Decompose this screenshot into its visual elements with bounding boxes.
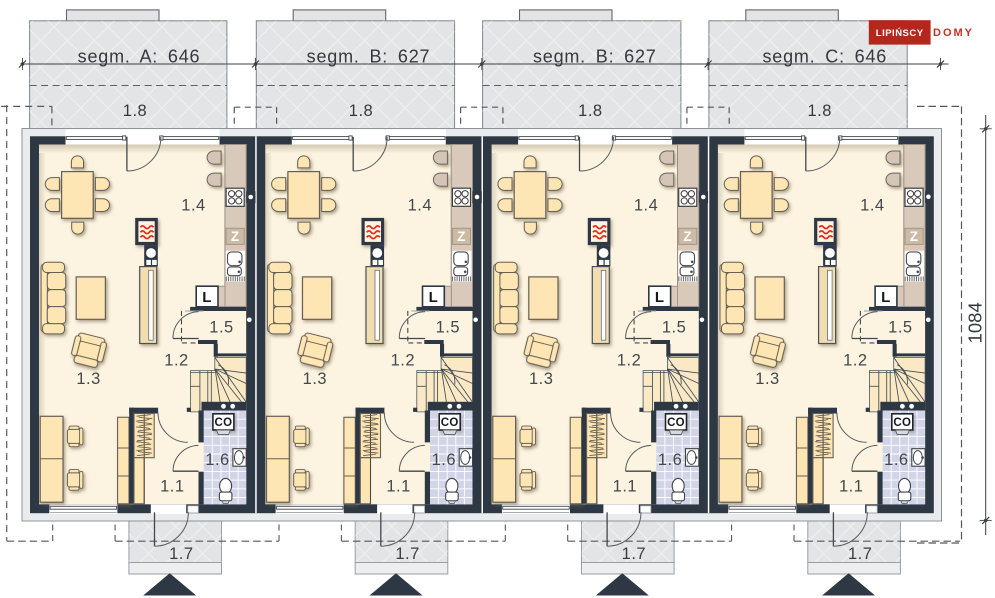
- svg-text:1.8: 1.8: [349, 102, 373, 120]
- svg-text:1.8: 1.8: [578, 102, 602, 120]
- svg-text:1.5: 1.5: [662, 318, 686, 336]
- svg-text:1.8: 1.8: [123, 102, 147, 120]
- svg-text:1.7: 1.7: [622, 545, 646, 563]
- svg-text:1.5: 1.5: [209, 318, 233, 336]
- svg-text:1.4: 1.4: [408, 196, 432, 214]
- svg-text:1.3: 1.3: [76, 370, 100, 388]
- svg-text:1.6: 1.6: [884, 451, 908, 469]
- svg-text:1.4: 1.4: [860, 196, 884, 214]
- svg-text:1.8: 1.8: [807, 102, 831, 120]
- svg-text:1.3: 1.3: [303, 370, 327, 388]
- svg-text:1.1: 1.1: [613, 478, 637, 496]
- svg-text:1.2: 1.2: [164, 351, 188, 369]
- svg-text:1.2: 1.2: [617, 351, 641, 369]
- svg-text:L: L: [655, 289, 665, 306]
- svg-text:Z: Z: [910, 229, 919, 244]
- svg-text:DOMY: DOMY: [933, 27, 974, 39]
- svg-text:1.2: 1.2: [391, 351, 415, 369]
- svg-text:L: L: [202, 289, 212, 306]
- svg-text:1.3: 1.3: [755, 370, 779, 388]
- svg-text:1.5: 1.5: [888, 318, 912, 336]
- svg-text:1.4: 1.4: [634, 196, 658, 214]
- svg-text:1.7: 1.7: [848, 545, 872, 563]
- svg-text:1.7: 1.7: [395, 545, 419, 563]
- svg-text:1.4: 1.4: [181, 196, 205, 214]
- svg-text:1.6: 1.6: [205, 451, 229, 469]
- svg-text:segm. B: 627: segm. B: 627: [307, 47, 431, 67]
- svg-text:LIPIŃSCY: LIPIŃSCY: [876, 28, 924, 39]
- svg-text:segm. A: 646: segm. A: 646: [78, 47, 201, 67]
- svg-text:1.1: 1.1: [839, 478, 863, 496]
- svg-text:1.7: 1.7: [169, 545, 193, 563]
- svg-text:1.6: 1.6: [432, 451, 456, 469]
- svg-text:CO: CO: [893, 417, 911, 429]
- svg-text:1.6: 1.6: [658, 451, 682, 469]
- svg-text:1.1: 1.1: [386, 478, 410, 496]
- svg-text:segm. C: 646: segm. C: 646: [762, 47, 887, 67]
- svg-text:1.5: 1.5: [436, 318, 460, 336]
- svg-text:Z: Z: [457, 229, 466, 244]
- svg-text:L: L: [881, 289, 891, 306]
- svg-text:1.2: 1.2: [843, 351, 867, 369]
- svg-text:1.1: 1.1: [160, 478, 184, 496]
- svg-text:Z: Z: [683, 229, 692, 244]
- svg-text:Z: Z: [231, 229, 240, 244]
- svg-text:CO: CO: [441, 417, 459, 429]
- svg-text:L: L: [429, 289, 439, 306]
- svg-text:1.3: 1.3: [529, 370, 553, 388]
- svg-text:segm. B: 627: segm. B: 627: [533, 47, 657, 67]
- svg-text:1084: 1084: [965, 302, 986, 343]
- svg-text:CO: CO: [667, 417, 685, 429]
- svg-text:CO: CO: [214, 417, 232, 429]
